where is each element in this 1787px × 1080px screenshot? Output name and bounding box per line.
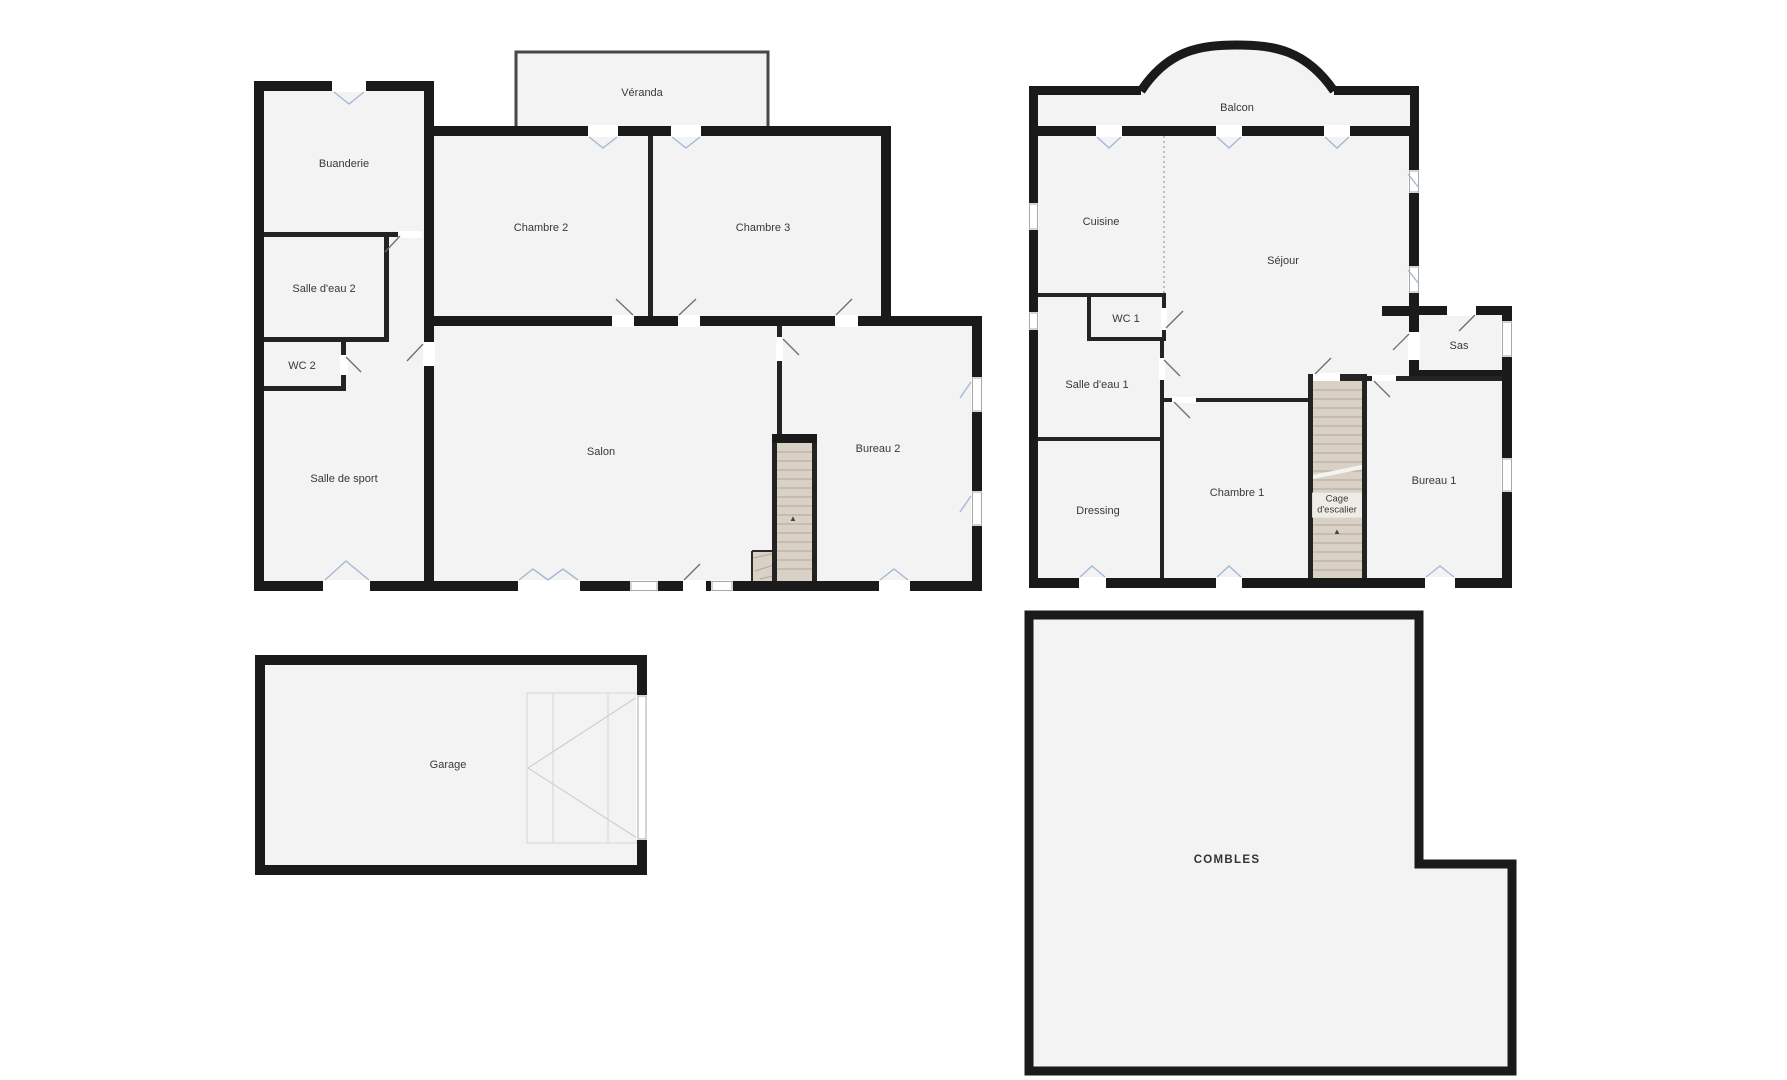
ground-floor-plan: ▲ — [254, 52, 983, 592]
room-label-dressing: Dressing — [1076, 505, 1119, 517]
combles-plan — [1029, 615, 1512, 1071]
room-label-garage: Garage — [430, 759, 467, 771]
balcony-arc-fill — [1141, 47, 1334, 95]
room-label-salle-de-sport: Salle de sport — [310, 473, 377, 485]
room-label-cuisine: Cuisine — [1083, 216, 1120, 228]
room-label-chambre-3: Chambre 3 — [736, 222, 790, 234]
first-floor-stairs — [1308, 381, 1367, 578]
stairs-up-arrow: ▲ — [789, 514, 797, 523]
room-label-veranda: Véranda — [621, 87, 663, 99]
room-label-sas: Sas — [1450, 340, 1469, 352]
room-label-balcon: Balcon — [1220, 102, 1254, 114]
room-label-chambre-2: Chambre 2 — [514, 222, 568, 234]
room-label-sejour: Séjour — [1267, 255, 1299, 267]
room-label-combles: COMBLES — [1194, 854, 1261, 866]
floor-plan-svg: ▲ — [0, 0, 1787, 1080]
room-label-chambre-1: Chambre 1 — [1210, 487, 1264, 499]
stairs-up-arrow: ▲ — [1333, 527, 1341, 536]
room-label-cage-escalier: Cage d'escalier — [1312, 493, 1362, 518]
first-floor-footprint — [1029, 126, 1512, 588]
room-label-wc-1: WC 1 — [1112, 313, 1140, 325]
room-label-salle-eau-1: Salle d'eau 1 — [1065, 379, 1128, 391]
room-label-buanderie: Buanderie — [319, 158, 369, 170]
room-label-salon: Salon — [587, 446, 615, 458]
room-label-bureau-2: Bureau 2 — [856, 443, 901, 455]
room-label-wc-2: WC 2 — [288, 360, 316, 372]
room-label-salle-eau-2: Salle d'eau 2 — [292, 283, 355, 295]
combles-outline — [1029, 615, 1512, 1071]
floor-plan-page: ▲ — [0, 0, 1787, 1080]
room-label-bureau-1: Bureau 1 — [1412, 475, 1457, 487]
